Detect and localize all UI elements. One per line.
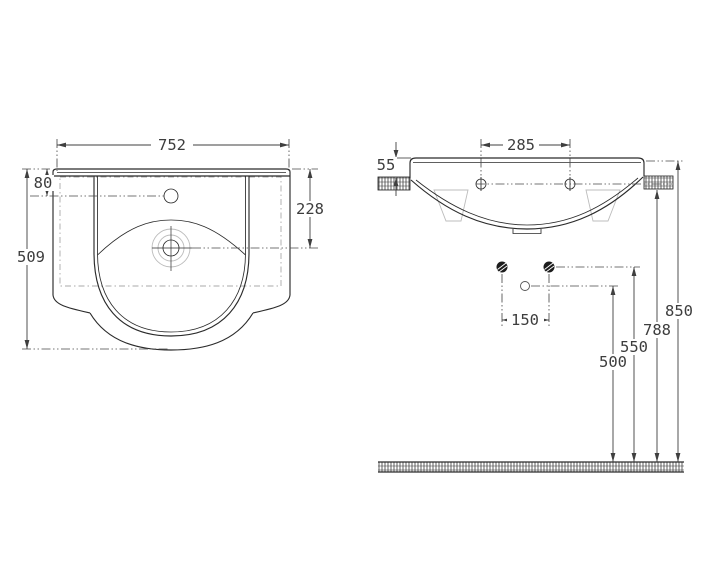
shelf-height-label: 788 bbox=[643, 321, 671, 339]
plan-drain-depth-dimension: 228 bbox=[293, 169, 327, 248]
floor-line bbox=[378, 462, 684, 472]
basin-bowl-profile bbox=[411, 177, 643, 234]
plan-width-dimension: 752 bbox=[57, 136, 289, 154]
plan-tap-offset-label: 80 bbox=[34, 174, 53, 192]
plan-tap-offset-dimension: 80 bbox=[33, 169, 54, 196]
rim-height-label: 55 bbox=[377, 156, 396, 174]
fixing-bolt-left bbox=[497, 262, 508, 273]
plan-drain-depth-label: 228 bbox=[296, 200, 324, 218]
plan-view: 752 80 509 228 bbox=[14, 136, 327, 350]
tap-spacing-dimension: 285 bbox=[481, 136, 570, 154]
elevation-centerlines bbox=[476, 139, 684, 327]
basin-outer-outline bbox=[53, 176, 290, 350]
plan-centerlines bbox=[22, 139, 318, 349]
bolt-spacing-label: 150 bbox=[511, 311, 539, 329]
bolt-height-label: 550 bbox=[620, 338, 648, 356]
drawing-sheet: 752 80 509 228 bbox=[0, 0, 703, 571]
tap-spacing-label: 285 bbox=[507, 136, 535, 154]
rim-top-height-dimension: 850 bbox=[662, 161, 697, 462]
bolt-spacing-dimension: 150 bbox=[502, 311, 549, 329]
fixing-bolt-right bbox=[544, 262, 555, 273]
tap-hole bbox=[164, 189, 178, 203]
elevation-view: 285 55 150 500 bbox=[374, 136, 697, 472]
rim-top-height-label: 850 bbox=[665, 302, 693, 320]
wall-shelf-hatch-left bbox=[378, 177, 410, 190]
basin-back-rim bbox=[53, 169, 290, 176]
basin-bowl-rim bbox=[94, 253, 249, 336]
mounting-brackets bbox=[434, 190, 620, 221]
basin-rim-profile bbox=[410, 158, 644, 178]
basin-recess-walls bbox=[94, 176, 249, 253]
plan-depth-label: 509 bbox=[17, 248, 45, 266]
trap-height-dimension: 500 bbox=[596, 286, 630, 462]
drain-outlet bbox=[152, 226, 192, 271]
shelf-height-dimension: 788 bbox=[640, 190, 674, 462]
basin-deck-arc bbox=[98, 220, 246, 255]
waste-outlet-marker bbox=[521, 282, 530, 291]
plan-width-label: 752 bbox=[158, 136, 186, 154]
wall-shelf-hatch-right bbox=[644, 176, 673, 189]
technical-drawing: 752 80 509 228 bbox=[0, 0, 703, 571]
